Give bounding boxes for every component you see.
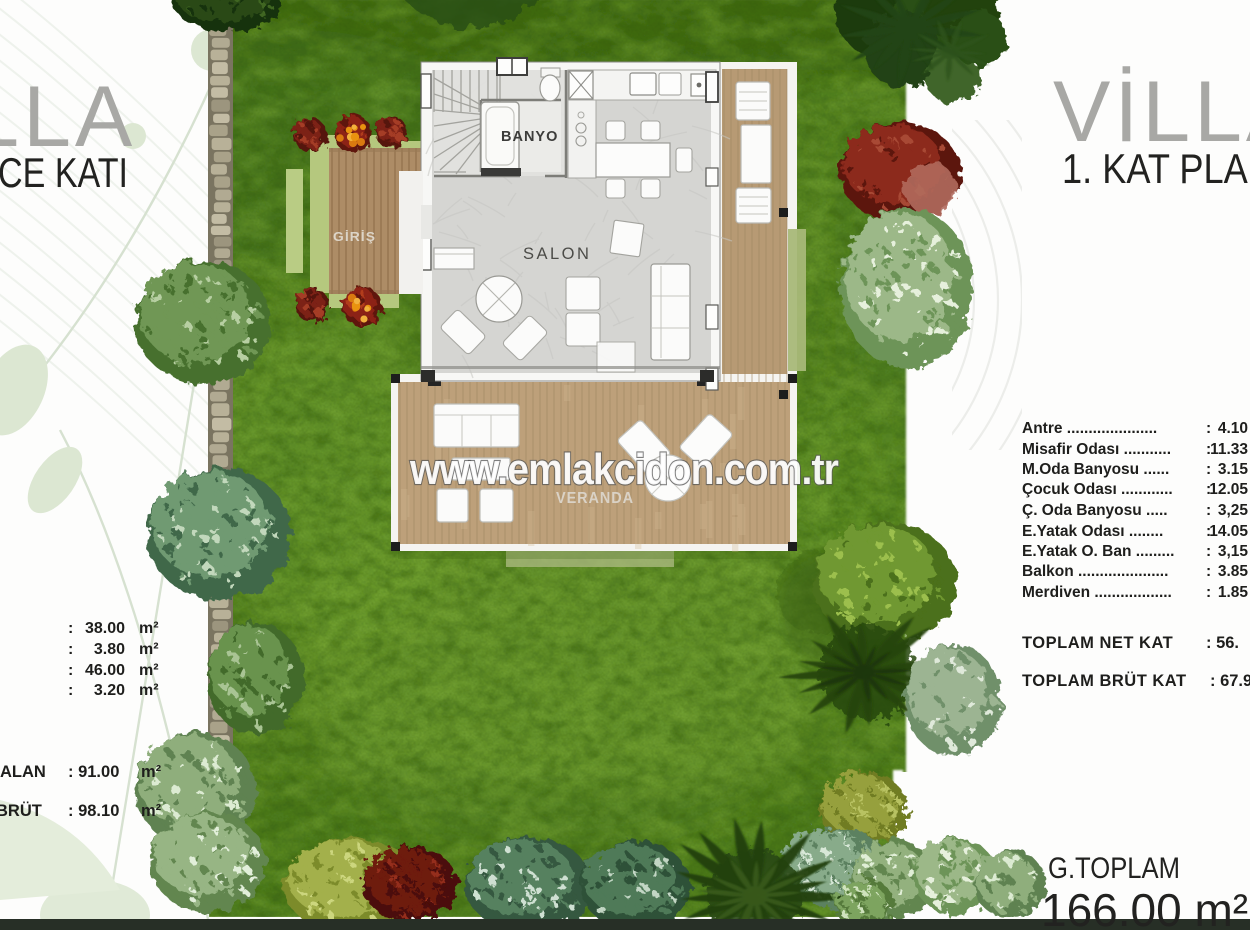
svg-text:Balkon .....................: Balkon .....................	[1022, 563, 1168, 580]
svg-text:1. KAT PLANI: 1. KAT PLANI	[1062, 145, 1250, 192]
svg-text:3.85: 3.85	[1218, 563, 1249, 580]
svg-text:3.15: 3.15	[1218, 461, 1249, 478]
svg-text:m²: m²	[139, 682, 159, 699]
svg-text:m²: m²	[141, 802, 162, 820]
svg-text:14.05: 14.05	[1209, 523, 1248, 540]
svg-text::: :	[1206, 543, 1211, 560]
svg-text:3.80: 3.80	[94, 641, 125, 658]
svg-text:12.05: 12.05	[1209, 481, 1248, 498]
svg-text:38.00: 38.00	[85, 620, 125, 637]
svg-text:: 56.: : 56.	[1206, 634, 1239, 652]
svg-text:4.10: 4.10	[1218, 420, 1248, 437]
svg-text:11.33: 11.33	[1210, 441, 1248, 458]
svg-text:m²: m²	[139, 620, 159, 637]
svg-text:Ç. Oda Banyosu .....: Ç. Oda Banyosu .....	[1022, 502, 1168, 519]
svg-text:Çocuk Odası ............: Çocuk Odası ............	[1022, 481, 1173, 498]
svg-text:BRÜT: BRÜT	[0, 801, 42, 820]
svg-text:m²: m²	[141, 763, 162, 781]
svg-text::: :	[68, 662, 73, 679]
svg-text::: :	[1206, 461, 1211, 478]
svg-text:166.00 m²: 166.00 m²	[1041, 884, 1248, 930]
svg-text:G.TOPLAM: G.TOPLAM	[1048, 852, 1180, 885]
svg-text:E.Yatak O. Ban .........: E.Yatak O. Ban .........	[1022, 543, 1174, 560]
svg-text:Merdiven ..................: Merdiven ..................	[1022, 584, 1172, 601]
svg-text::: :	[1206, 584, 1211, 601]
svg-text::: :	[68, 682, 73, 699]
svg-text:SALON: SALON	[523, 245, 591, 263]
svg-text:3,15: 3,15	[1218, 543, 1249, 560]
svg-text::: :	[1206, 563, 1211, 580]
svg-text:: 98.10: : 98.10	[68, 802, 119, 820]
svg-text:E.Yatak Odası ........: E.Yatak Odası ........	[1022, 523, 1163, 540]
svg-text:: 91.00: : 91.00	[68, 763, 119, 781]
svg-text::: :	[68, 620, 73, 637]
svg-text:ALAN: ALAN	[0, 763, 46, 781]
svg-text:www.emlakcidon.com.tr: www.emlakcidon.com.tr	[409, 445, 839, 494]
svg-text:3,25: 3,25	[1218, 502, 1249, 519]
svg-text:GİRİŞ: GİRİŞ	[333, 229, 376, 244]
svg-text:Antre .....................: Antre .....................	[1022, 420, 1157, 437]
svg-text:TOPLAM NET KAT: TOPLAM NET KAT	[1022, 634, 1173, 652]
svg-text:M.Oda Banyosu ......: M.Oda Banyosu ......	[1022, 461, 1169, 478]
svg-text:: 67.9: : 67.9	[1210, 672, 1250, 690]
svg-text:BANYO: BANYO	[501, 129, 558, 145]
svg-text::: :	[1206, 420, 1211, 437]
svg-text:TOPLAM BRÜT KAT: TOPLAM BRÜT KAT	[1022, 671, 1187, 690]
svg-text::: :	[1206, 502, 1211, 519]
svg-text:46.00: 46.00	[85, 662, 125, 679]
svg-text:m²: m²	[139, 641, 159, 658]
svg-text:Misafir Odası ...........: Misafir Odası ...........	[1022, 441, 1171, 458]
svg-text::: :	[68, 641, 73, 658]
svg-text:3.20: 3.20	[94, 682, 125, 699]
svg-text:BAHCE KATI: BAHCE KATI	[0, 149, 128, 196]
svg-text:m²: m²	[139, 662, 159, 679]
svg-text:1.85: 1.85	[1218, 584, 1249, 601]
